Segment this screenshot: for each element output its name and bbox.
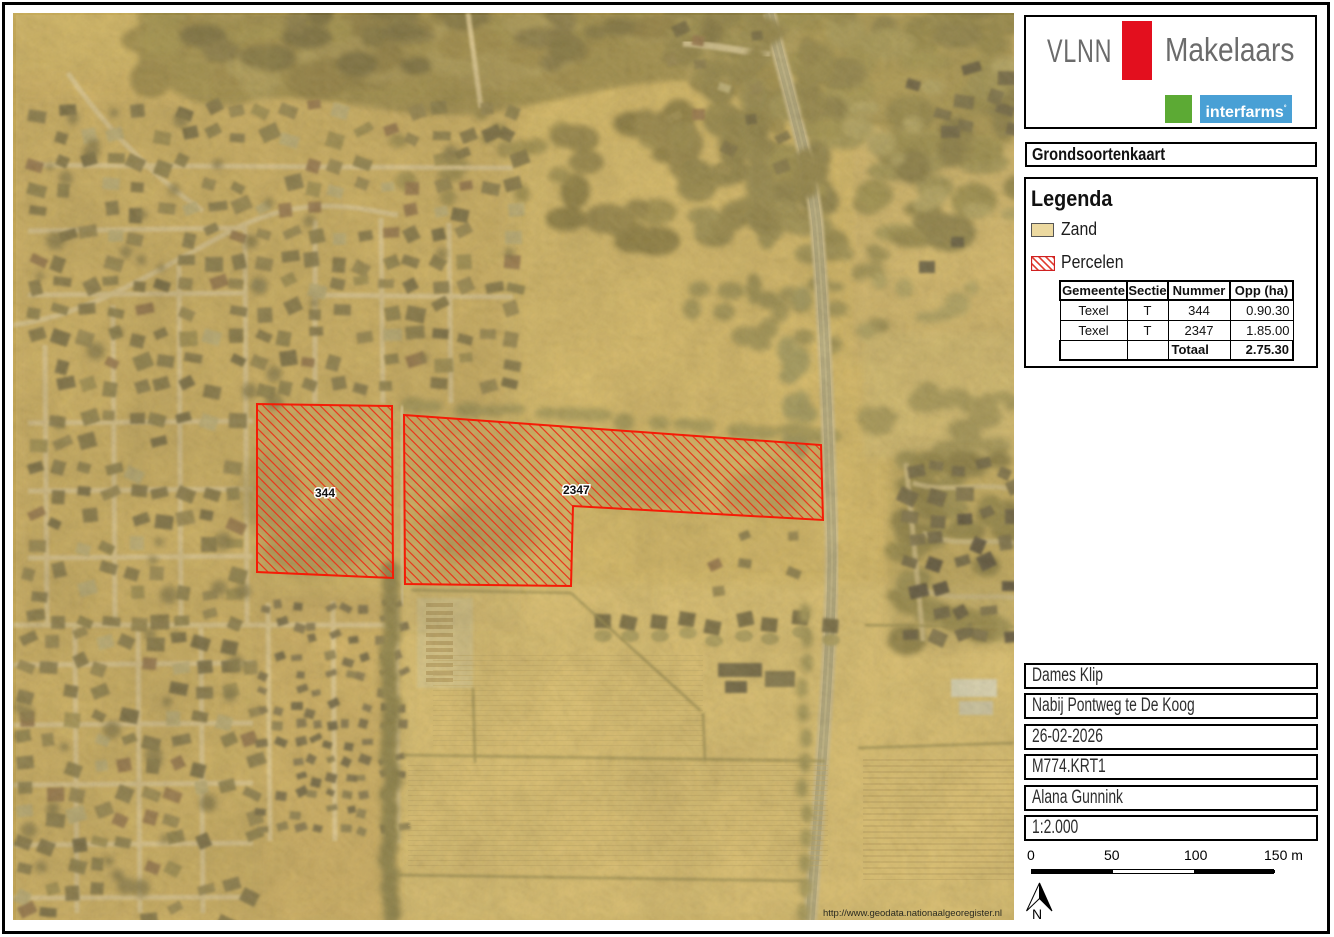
- svg-text:344: 344: [315, 486, 335, 500]
- svg-text:http://www.geodata.nationaalge: http://www.geodata.nationaalgeoregister.…: [823, 908, 1002, 919]
- svg-text:2347: 2347: [563, 483, 590, 497]
